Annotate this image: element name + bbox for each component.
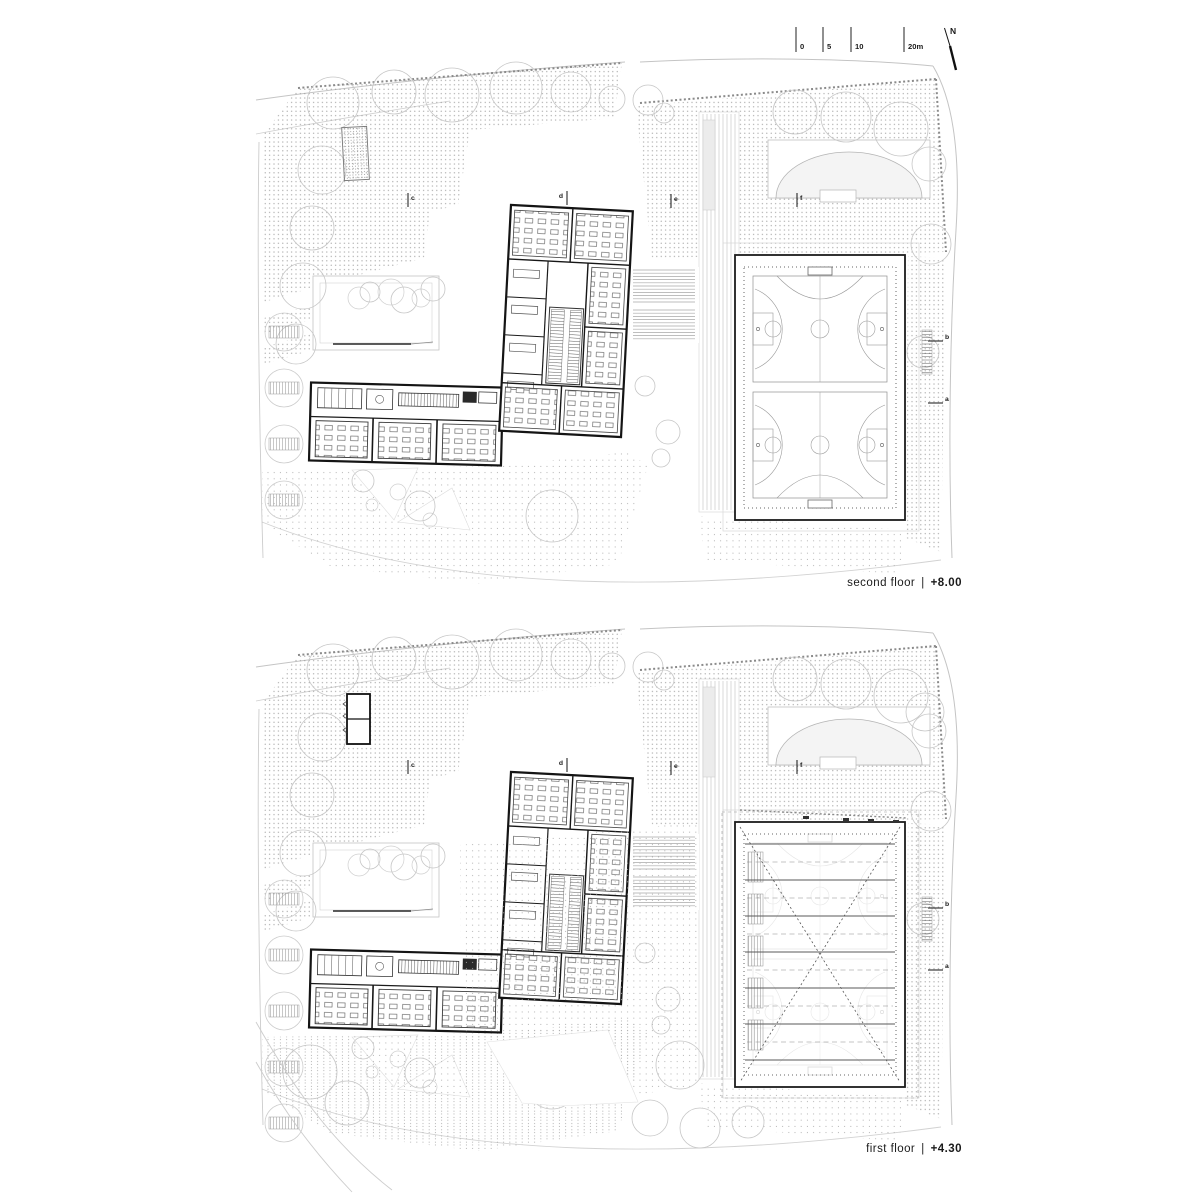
scale-tick-5: 5 (827, 42, 832, 51)
scale-tick-10: 10 (855, 42, 863, 51)
section-marker-d: d (559, 760, 563, 767)
plan-second-floor: c d e f b a second floor|+8.00 (256, 59, 962, 589)
section-marker-e: e (674, 763, 678, 770)
section-marker-e: e (674, 196, 678, 203)
section-marker-a: a (945, 396, 949, 403)
section-marker-a: a (945, 963, 949, 970)
floor-label-second: second floor|+8.00 (847, 577, 962, 589)
plan-first-floor: c d e f b a first floor|+4.30 (256, 626, 962, 1192)
north-label: N (950, 26, 956, 36)
street-planter-extra (265, 1104, 303, 1142)
scale-tick-20m: 20m (908, 42, 923, 51)
scale-tick-0: 0 (800, 42, 804, 51)
planting-bed (342, 126, 370, 180)
section-marker-c: c (411, 195, 415, 202)
section-marker-c: c (411, 762, 415, 769)
section-marker-b: b (945, 334, 949, 341)
section-marker-d: d (559, 193, 563, 200)
north-arrow: N (945, 26, 957, 70)
scale-bar: 0 5 10 20m (796, 27, 923, 52)
site-plan-drawing: c d e f b a second floor|+8.00 (0, 0, 1200, 1200)
floor-label-first: first floor|+4.30 (866, 1143, 962, 1155)
architectural-sheet: c d e f b a second floor|+8.00 (0, 0, 1200, 1200)
garden-pavilion (343, 694, 370, 744)
section-marker-b: b (945, 901, 949, 908)
